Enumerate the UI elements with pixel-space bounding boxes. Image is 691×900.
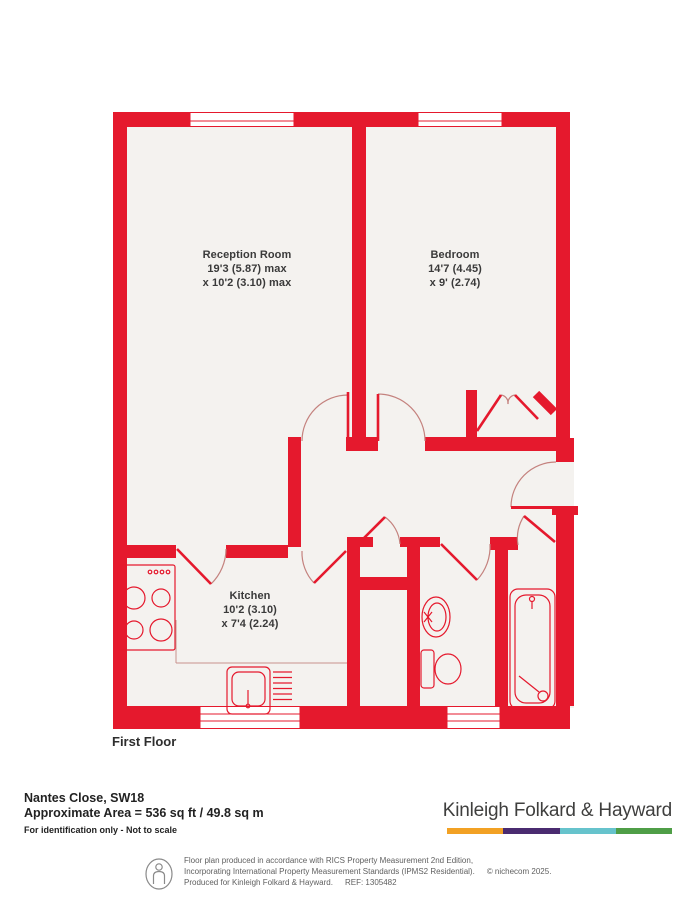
- room-label-bedroom: Bedroom 14'7 (4.45) x 9' (2.74): [345, 248, 565, 290]
- room-name: Reception Room: [137, 248, 357, 262]
- window-kitchen: [200, 707, 300, 729]
- nichecom-logo-icon: [144, 857, 174, 891]
- agency-logo: Kinleigh Folkard & Hayward: [432, 800, 672, 822]
- room-dim: 14'7 (4.45): [345, 262, 565, 276]
- room-dim: 19'3 (5.87) max: [137, 262, 357, 276]
- reference-number: REF: 1305482: [345, 878, 397, 887]
- footer: Floor plan produced in accordance with R…: [144, 855, 551, 891]
- brand-block: Kinleigh Folkard & Hayward: [432, 800, 672, 834]
- address: Nantes Close, SW18: [24, 791, 264, 806]
- room-dim: 10'2 (3.10): [140, 603, 360, 617]
- room-label-kitchen: Kitchen 10'2 (3.10) x 7'4 (2.24): [140, 589, 360, 631]
- brand-bar-green: [616, 828, 672, 834]
- address-block: Nantes Close, SW18 Approximate Area = 53…: [24, 791, 264, 835]
- brand-color-bar: [447, 828, 672, 834]
- floor-plan-svg: [0, 0, 691, 900]
- window-bedroom: [418, 113, 502, 127]
- brand-bar-teal: [560, 828, 616, 834]
- copyright: © nichecom 2025.: [487, 867, 552, 876]
- footer-line1: Floor plan produced in accordance with R…: [184, 855, 551, 866]
- room-name: Kitchen: [140, 589, 360, 603]
- floorplan-page: { "plan": { "floor_label": "First Floor"…: [0, 0, 691, 900]
- room-name: Bedroom: [345, 248, 565, 262]
- footer-line3: Produced for Kinleigh Folkard & Hayward.…: [184, 877, 551, 888]
- window-wc: [447, 707, 500, 729]
- footer-text: Floor plan produced in accordance with R…: [184, 855, 551, 888]
- brand-bar-purple: [503, 828, 559, 834]
- room-dim: x 9' (2.74): [345, 276, 565, 290]
- room-label-reception: Reception Room 19'3 (5.87) max x 10'2 (3…: [137, 248, 357, 290]
- disclaimer: For identification only - Not to scale: [24, 825, 264, 835]
- window-reception: [190, 113, 294, 127]
- brand-bar-orange: [447, 828, 503, 834]
- footer-line2: Incorporating International Property Mea…: [184, 866, 551, 877]
- room-dim: x 7'4 (2.24): [140, 617, 360, 631]
- floor-label: First Floor: [112, 734, 176, 749]
- approximate-area: Approximate Area = 536 sq ft / 49.8 sq m: [24, 806, 264, 821]
- room-dim: x 10'2 (3.10) max: [137, 276, 357, 290]
